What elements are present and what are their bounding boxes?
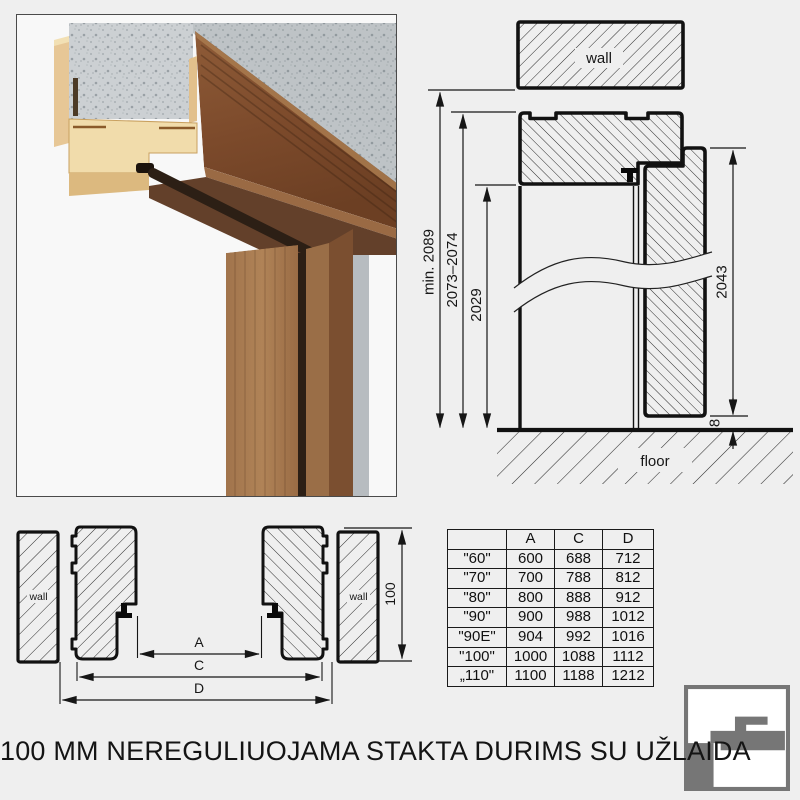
- mdf-right-flange: [189, 56, 197, 123]
- dim-opening-height: 2029: [468, 288, 485, 321]
- cell-a: 800: [507, 588, 555, 608]
- dim-total-height: min. 2089: [421, 229, 438, 295]
- dim-frame-depth: 100: [382, 582, 398, 606]
- cell-size: "100": [448, 647, 507, 667]
- table-row: "60" 600 688 712: [448, 549, 654, 569]
- cell-d: 1112: [603, 647, 654, 667]
- dim-c-label: C: [194, 657, 204, 673]
- table-header-row: A C D: [448, 530, 654, 550]
- dimension-lines-left: [428, 90, 516, 428]
- head-seal-glyph: [621, 168, 638, 173]
- cell-a: 700: [507, 569, 555, 589]
- wall-left-label: wall: [28, 591, 47, 603]
- cell-c: 1188: [555, 667, 603, 687]
- cell-c: 688: [555, 549, 603, 569]
- concrete-sliver: [353, 231, 369, 496]
- cell-a: 600: [507, 549, 555, 569]
- header-a: A: [507, 530, 555, 550]
- dim-floor-gap: 8: [707, 419, 724, 427]
- cell-size: "90": [448, 608, 507, 628]
- cell-size: "60": [448, 549, 507, 569]
- cell-d: 712: [603, 549, 654, 569]
- cell-c: 988: [555, 608, 603, 628]
- elevation-drawing: wall floor min. 2089 2073–2074: [415, 10, 795, 495]
- table-row: "90E" 904 992 1016: [448, 627, 654, 647]
- size-table: A C D "60" 600 688 712 "70" 700 788 812 …: [447, 529, 654, 687]
- concrete-wall-left: [69, 23, 193, 119]
- cell-c: 1088: [555, 647, 603, 667]
- cell-a: 904: [507, 627, 555, 647]
- dim-leaf-height: 2043: [714, 265, 731, 298]
- cell-a: 1000: [507, 647, 555, 667]
- cell-d: 812: [603, 569, 654, 589]
- table-row: "70" 700 788 812: [448, 569, 654, 589]
- dim-a-label: A: [194, 634, 204, 650]
- jamb-step-face: [306, 243, 329, 496]
- jamb-seal: [298, 253, 306, 496]
- cell-a: 900: [507, 608, 555, 628]
- floor-label: floor: [640, 453, 669, 470]
- cell-size: "90E": [448, 627, 507, 647]
- table-row: „110" 1100 1188 1212: [448, 667, 654, 687]
- door-frame-3d-render: [16, 14, 397, 497]
- table-row: "100" 1000 1088 1112: [448, 647, 654, 667]
- frame-jamb-section-left: [72, 527, 136, 659]
- dim-frame-height: 2073–2074: [444, 232, 461, 307]
- cell-d: 1016: [603, 627, 654, 647]
- mdf-groove: [73, 78, 78, 116]
- table-row: "80" 800 888 912: [448, 588, 654, 608]
- cell-d: 912: [603, 588, 654, 608]
- page-title: 100 MM NEREGULIUOJAMA STAKTA DURIMS SU U…: [0, 736, 700, 767]
- cell-d: 1012: [603, 608, 654, 628]
- cell-size: „110": [448, 667, 507, 687]
- dim-d-label: D: [194, 680, 204, 696]
- header-c: C: [555, 530, 603, 550]
- header-size: [448, 530, 507, 550]
- header-d: D: [603, 530, 654, 550]
- cell-c: 788: [555, 569, 603, 589]
- frame-jamb-section-right: [263, 527, 327, 659]
- jamb-bevel: [329, 229, 353, 496]
- wall-right-label: wall: [348, 591, 367, 603]
- cell-size: "80": [448, 588, 507, 608]
- cell-a: 1100: [507, 667, 555, 687]
- wall-label: wall: [585, 50, 612, 67]
- cell-d: 1212: [603, 667, 654, 687]
- cell-size: "70": [448, 569, 507, 589]
- mdf-left-board: [54, 39, 69, 147]
- cell-c: 888: [555, 588, 603, 608]
- render-graphic: [17, 15, 396, 496]
- spec-sheet: wall floor min. 2089 2073–2074: [0, 0, 800, 800]
- section-drawing: wall wall 100: [8, 520, 440, 715]
- jamb-front-face: [226, 245, 298, 496]
- table-row: "90" 900 988 1012: [448, 608, 654, 628]
- cell-c: 992: [555, 627, 603, 647]
